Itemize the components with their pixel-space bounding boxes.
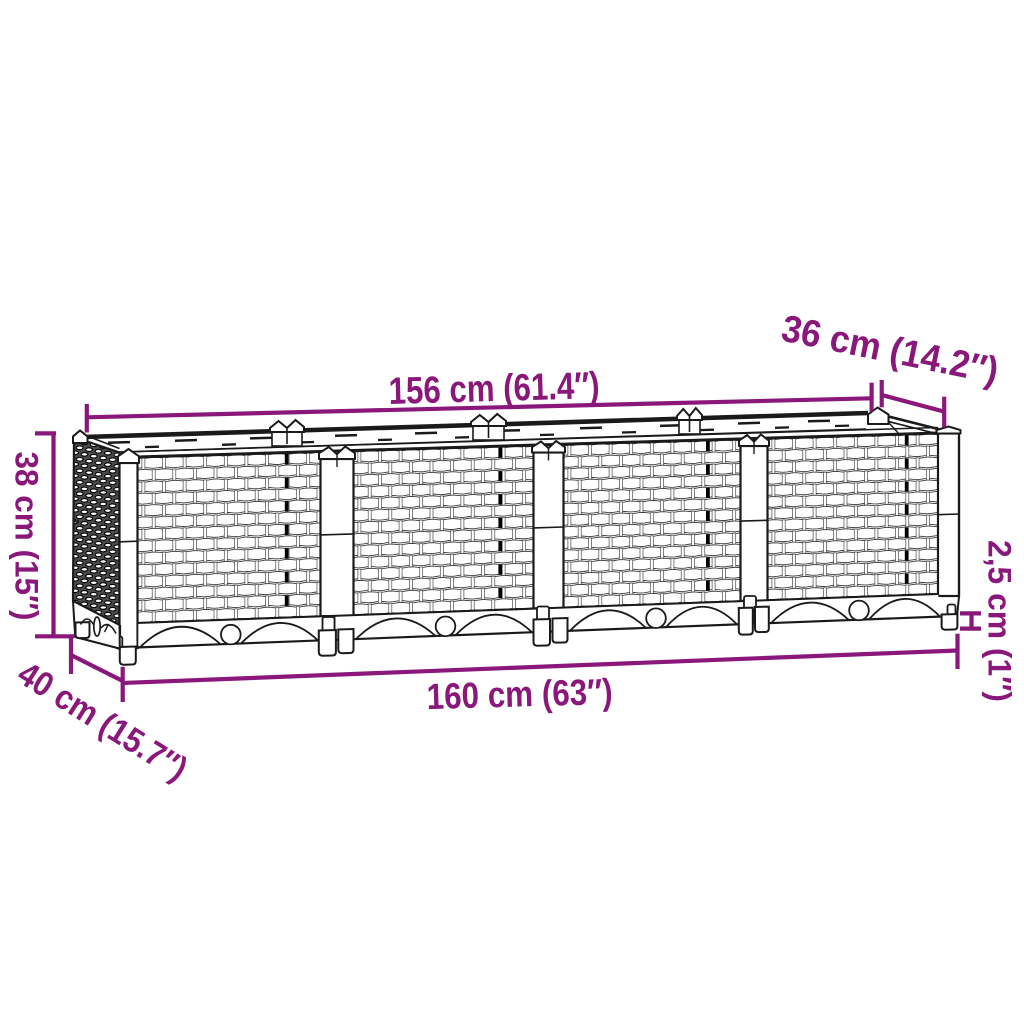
svg-text:156 cm (61.4″): 156 cm (61.4″) [388,365,600,413]
svg-text:38 cm (15″): 38 cm (15″) [9,452,45,621]
svg-text:2,5 cm (1″): 2,5 cm (1″) [982,540,1018,702]
svg-text:160 cm (63″): 160 cm (63″) [426,671,613,717]
